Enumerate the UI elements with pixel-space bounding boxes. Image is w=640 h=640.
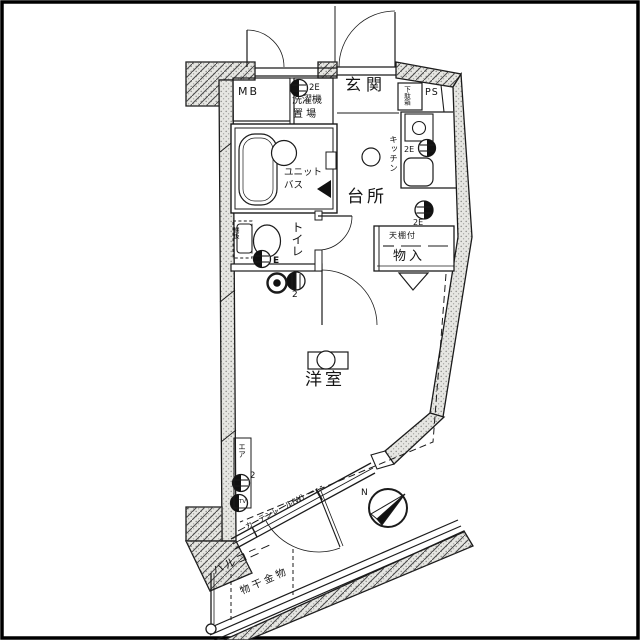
shoe-cabinet-label: 下駄箱 bbox=[403, 86, 410, 106]
kitchen-outlet-lower-icon bbox=[415, 201, 433, 219]
ps-label: PS bbox=[425, 88, 439, 98]
washer-label-line2: 置 場 bbox=[293, 110, 316, 120]
compass-north-label: N bbox=[361, 489, 368, 498]
washer-outlet-icon bbox=[291, 80, 308, 97]
tv-outlet-label: TV bbox=[239, 500, 246, 506]
kitchen-outlet-upper-icon bbox=[419, 140, 436, 157]
closet-top-label: 天棚付 bbox=[389, 232, 416, 240]
hall-outlet-count-label: 2 bbox=[292, 291, 298, 300]
balcony-drain bbox=[206, 624, 216, 634]
kitchen-label: キッチン bbox=[388, 135, 397, 173]
aircon-outlet-icon bbox=[233, 475, 250, 492]
dining-label: 台所 bbox=[347, 189, 387, 206]
washer-outlet-label: 2E bbox=[309, 84, 320, 93]
aircon-outlet-count-label: 2 bbox=[250, 472, 255, 481]
mb-label: MB bbox=[238, 86, 259, 97]
toilet-label: トイレ bbox=[291, 221, 303, 257]
room-light-icon bbox=[308, 351, 348, 369]
closet-label: 物入 bbox=[393, 250, 425, 263]
toilet-outlet-label: E bbox=[273, 257, 279, 266]
kitchen-outlet-upper-label: 2E bbox=[404, 146, 414, 154]
floorplan-page: MB 2E 洗濯機 置 場 玄関 下駄箱 PS キッチン 2E 2E 台所 ユニ… bbox=[0, 0, 640, 640]
entrance-label: 玄関 bbox=[345, 77, 387, 93]
hall-outlet-icon bbox=[287, 272, 305, 290]
washer-label-line1: 洗濯機 bbox=[292, 96, 322, 106]
toilet-outlet-icon bbox=[254, 251, 271, 268]
aircon-label: エア bbox=[238, 443, 246, 458]
kitchen-outlet-lower-label: 2E bbox=[413, 219, 423, 227]
north-arrow-icon bbox=[369, 489, 407, 527]
bath-sink bbox=[272, 141, 297, 166]
unit-bath-label-line2: バス bbox=[284, 181, 303, 191]
toilet-wall-stub-bottom bbox=[315, 250, 322, 271]
western-room-label: 洋室 bbox=[305, 372, 345, 389]
unit-bath-label-line1: ユニット bbox=[284, 168, 322, 178]
toilet-shelf-label: 棚板 bbox=[232, 227, 238, 239]
hall-switch-icon bbox=[268, 274, 287, 293]
bath-door-jamb bbox=[326, 152, 336, 169]
